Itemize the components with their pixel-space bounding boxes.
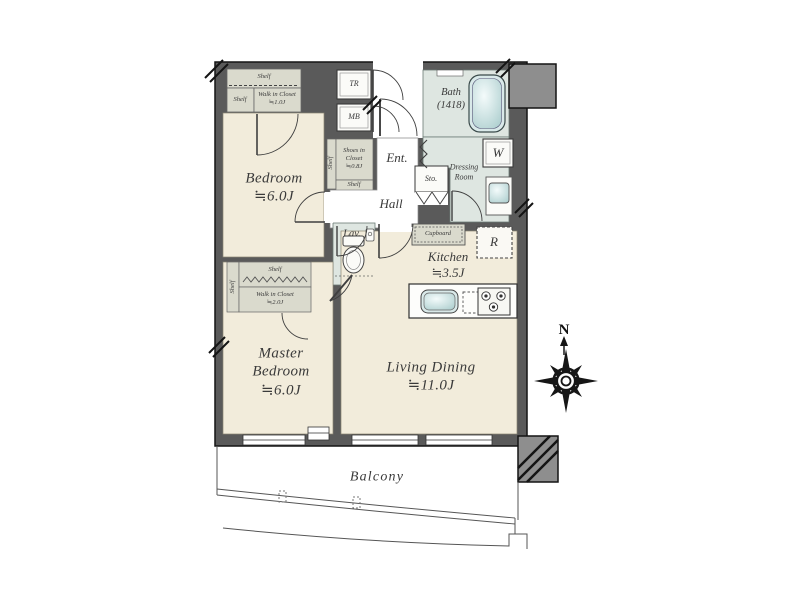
shoes-closet-shelf-bottom xyxy=(336,180,373,191)
bedroom-walk-in-closet xyxy=(254,88,301,112)
compass-arrowhead xyxy=(560,336,568,346)
shoes-closet-shelf-side xyxy=(327,139,336,189)
washing-machine-space xyxy=(483,139,513,167)
refrigerator-space xyxy=(477,227,512,258)
vanity-sink-icon xyxy=(489,183,509,203)
master-closet-shelf-row xyxy=(239,262,311,287)
hand-basin-icon xyxy=(366,229,374,241)
storage-box xyxy=(415,166,448,192)
master-walk-in-closet xyxy=(239,287,311,312)
trunk-room-box xyxy=(337,70,371,99)
master-closet-shelf-side xyxy=(227,262,239,312)
balcony-area xyxy=(217,446,527,549)
kitchen-sink-inner xyxy=(424,293,455,310)
column-top-right xyxy=(509,64,556,108)
bathtub-inner xyxy=(473,79,502,129)
balcony-outer-edge xyxy=(223,528,527,549)
floor-plan-canvas xyxy=(0,0,800,600)
living-door-opening xyxy=(379,227,413,232)
balcony-railing xyxy=(217,489,515,524)
shutter-box xyxy=(308,427,329,440)
floor-plan: Bedroom ≒6.0J Master Bedroom ≒6.0J Livin… xyxy=(0,0,800,600)
compass-rose-icon xyxy=(534,336,598,413)
shoes-closet xyxy=(336,139,373,180)
bedroom-floor xyxy=(223,113,324,257)
bedroom-closet-shelf-box xyxy=(227,88,254,112)
column-bottom-right xyxy=(518,436,558,482)
bedroom-door-opening xyxy=(324,192,333,223)
living-dining-floor xyxy=(341,231,517,434)
bath-counter xyxy=(437,70,463,76)
